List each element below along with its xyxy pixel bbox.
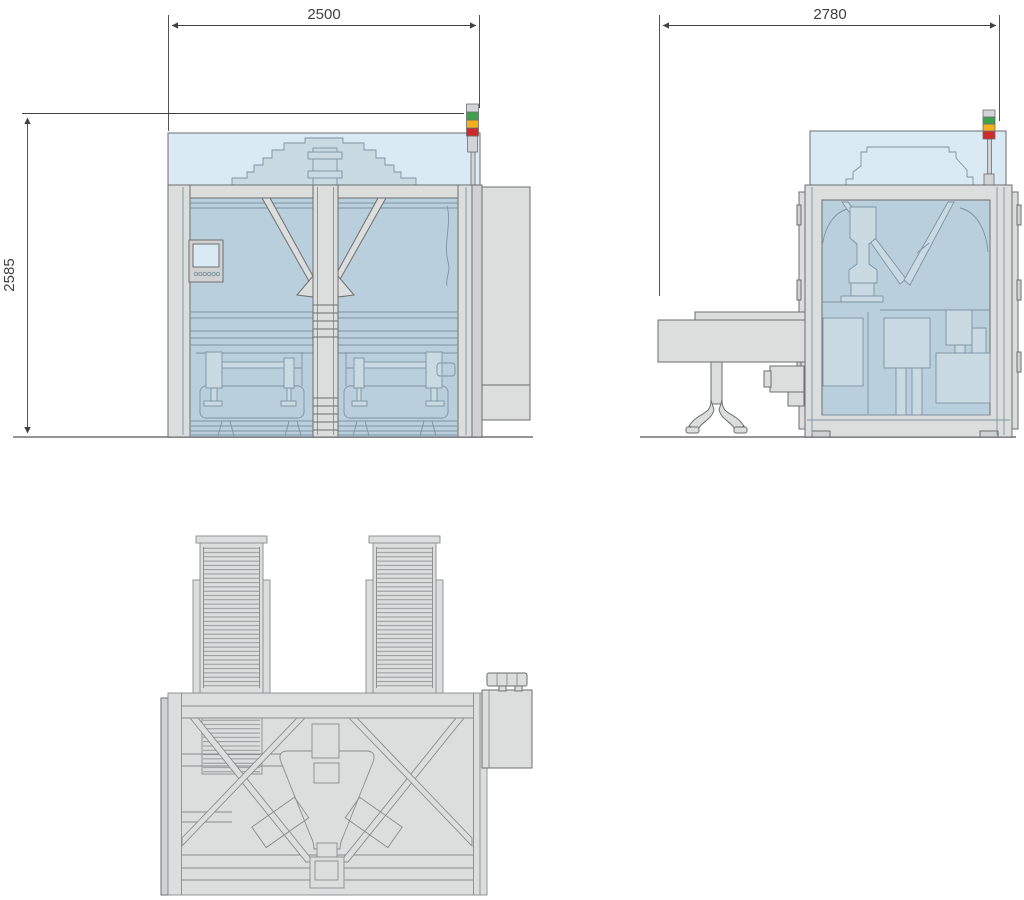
side-view: 2780 (640, 6, 1021, 437)
dim-front-width-label: 2500 (307, 6, 340, 23)
side-post-1 (896, 368, 906, 415)
machine-three-view-drawing: 2500 2585 (0, 0, 1024, 900)
top-view-left-strip (161, 698, 168, 895)
side-box-small-right (972, 328, 986, 355)
front-machine-body (168, 185, 530, 437)
front-tower-cap (467, 104, 479, 112)
side-foot-left (812, 431, 830, 437)
table-pedestal (711, 362, 722, 404)
side-tower-base (984, 174, 994, 185)
table-attachment-nub (764, 371, 771, 387)
side-box-lower-right (936, 353, 990, 403)
side-tower-light-red (983, 131, 995, 139)
top-view-conveyor-left (193, 536, 270, 693)
front-tower-light-red (467, 128, 479, 136)
front-view: 2500 2585 (1, 6, 533, 437)
front-tower-light-green (467, 112, 479, 120)
front-hood (168, 133, 480, 185)
front-hood-column-capital (308, 152, 342, 159)
table-attachment-box (770, 366, 804, 392)
front-hood-column-base (308, 171, 342, 178)
side-robot-pedestal (851, 283, 874, 296)
side-right-rail (1012, 192, 1018, 429)
table-foot-pad-left (686, 427, 699, 433)
assembly-neck (317, 843, 337, 857)
table-slab (658, 320, 805, 362)
top-view (161, 536, 532, 895)
top-view-side-attachment (482, 673, 532, 768)
front-right-strip (472, 185, 482, 437)
side-hood (810, 131, 1006, 185)
front-width-dimension: 2500 (169, 6, 480, 131)
side-tower-cap (983, 110, 995, 117)
front-tower-base (468, 136, 478, 152)
handle-stem-right (515, 686, 522, 691)
table-leg-left (689, 400, 714, 430)
side-foot-right (980, 431, 998, 437)
table-leg-right (719, 400, 744, 430)
side-robot-baseplate (841, 296, 883, 302)
side-post-2 (912, 368, 922, 415)
table-foot-pad-right (734, 427, 747, 433)
handle-stem-left (499, 686, 506, 691)
side-box-center (884, 318, 930, 368)
top-center-rect-upper (312, 724, 339, 758)
front-center-column (313, 185, 338, 437)
side-hood-window (810, 131, 1006, 185)
side-box-left (823, 318, 863, 386)
side-tower-pole (988, 139, 992, 174)
technical-drawing-canvas: 2500 2585 (0, 0, 1024, 900)
side-tower-light-amber (983, 124, 995, 131)
hmi-panel (189, 240, 223, 282)
attachment-box (482, 690, 532, 768)
front-tower-light-amber (467, 120, 479, 128)
front-left-column (168, 185, 190, 437)
hmi-screen (193, 244, 219, 267)
side-box-upper-right (946, 310, 972, 345)
table-attachment-step (788, 392, 804, 406)
side-outfeed-table (658, 312, 805, 433)
dim-front-height-label: 2585 (1, 258, 18, 291)
side-tower-light-green (983, 117, 995, 124)
top-view-conveyor-right (366, 536, 443, 693)
dim-side-depth-label: 2780 (813, 6, 846, 23)
front-tower-pole (471, 152, 475, 186)
side-box-stem (955, 345, 965, 353)
side-machine-body (658, 185, 1021, 437)
